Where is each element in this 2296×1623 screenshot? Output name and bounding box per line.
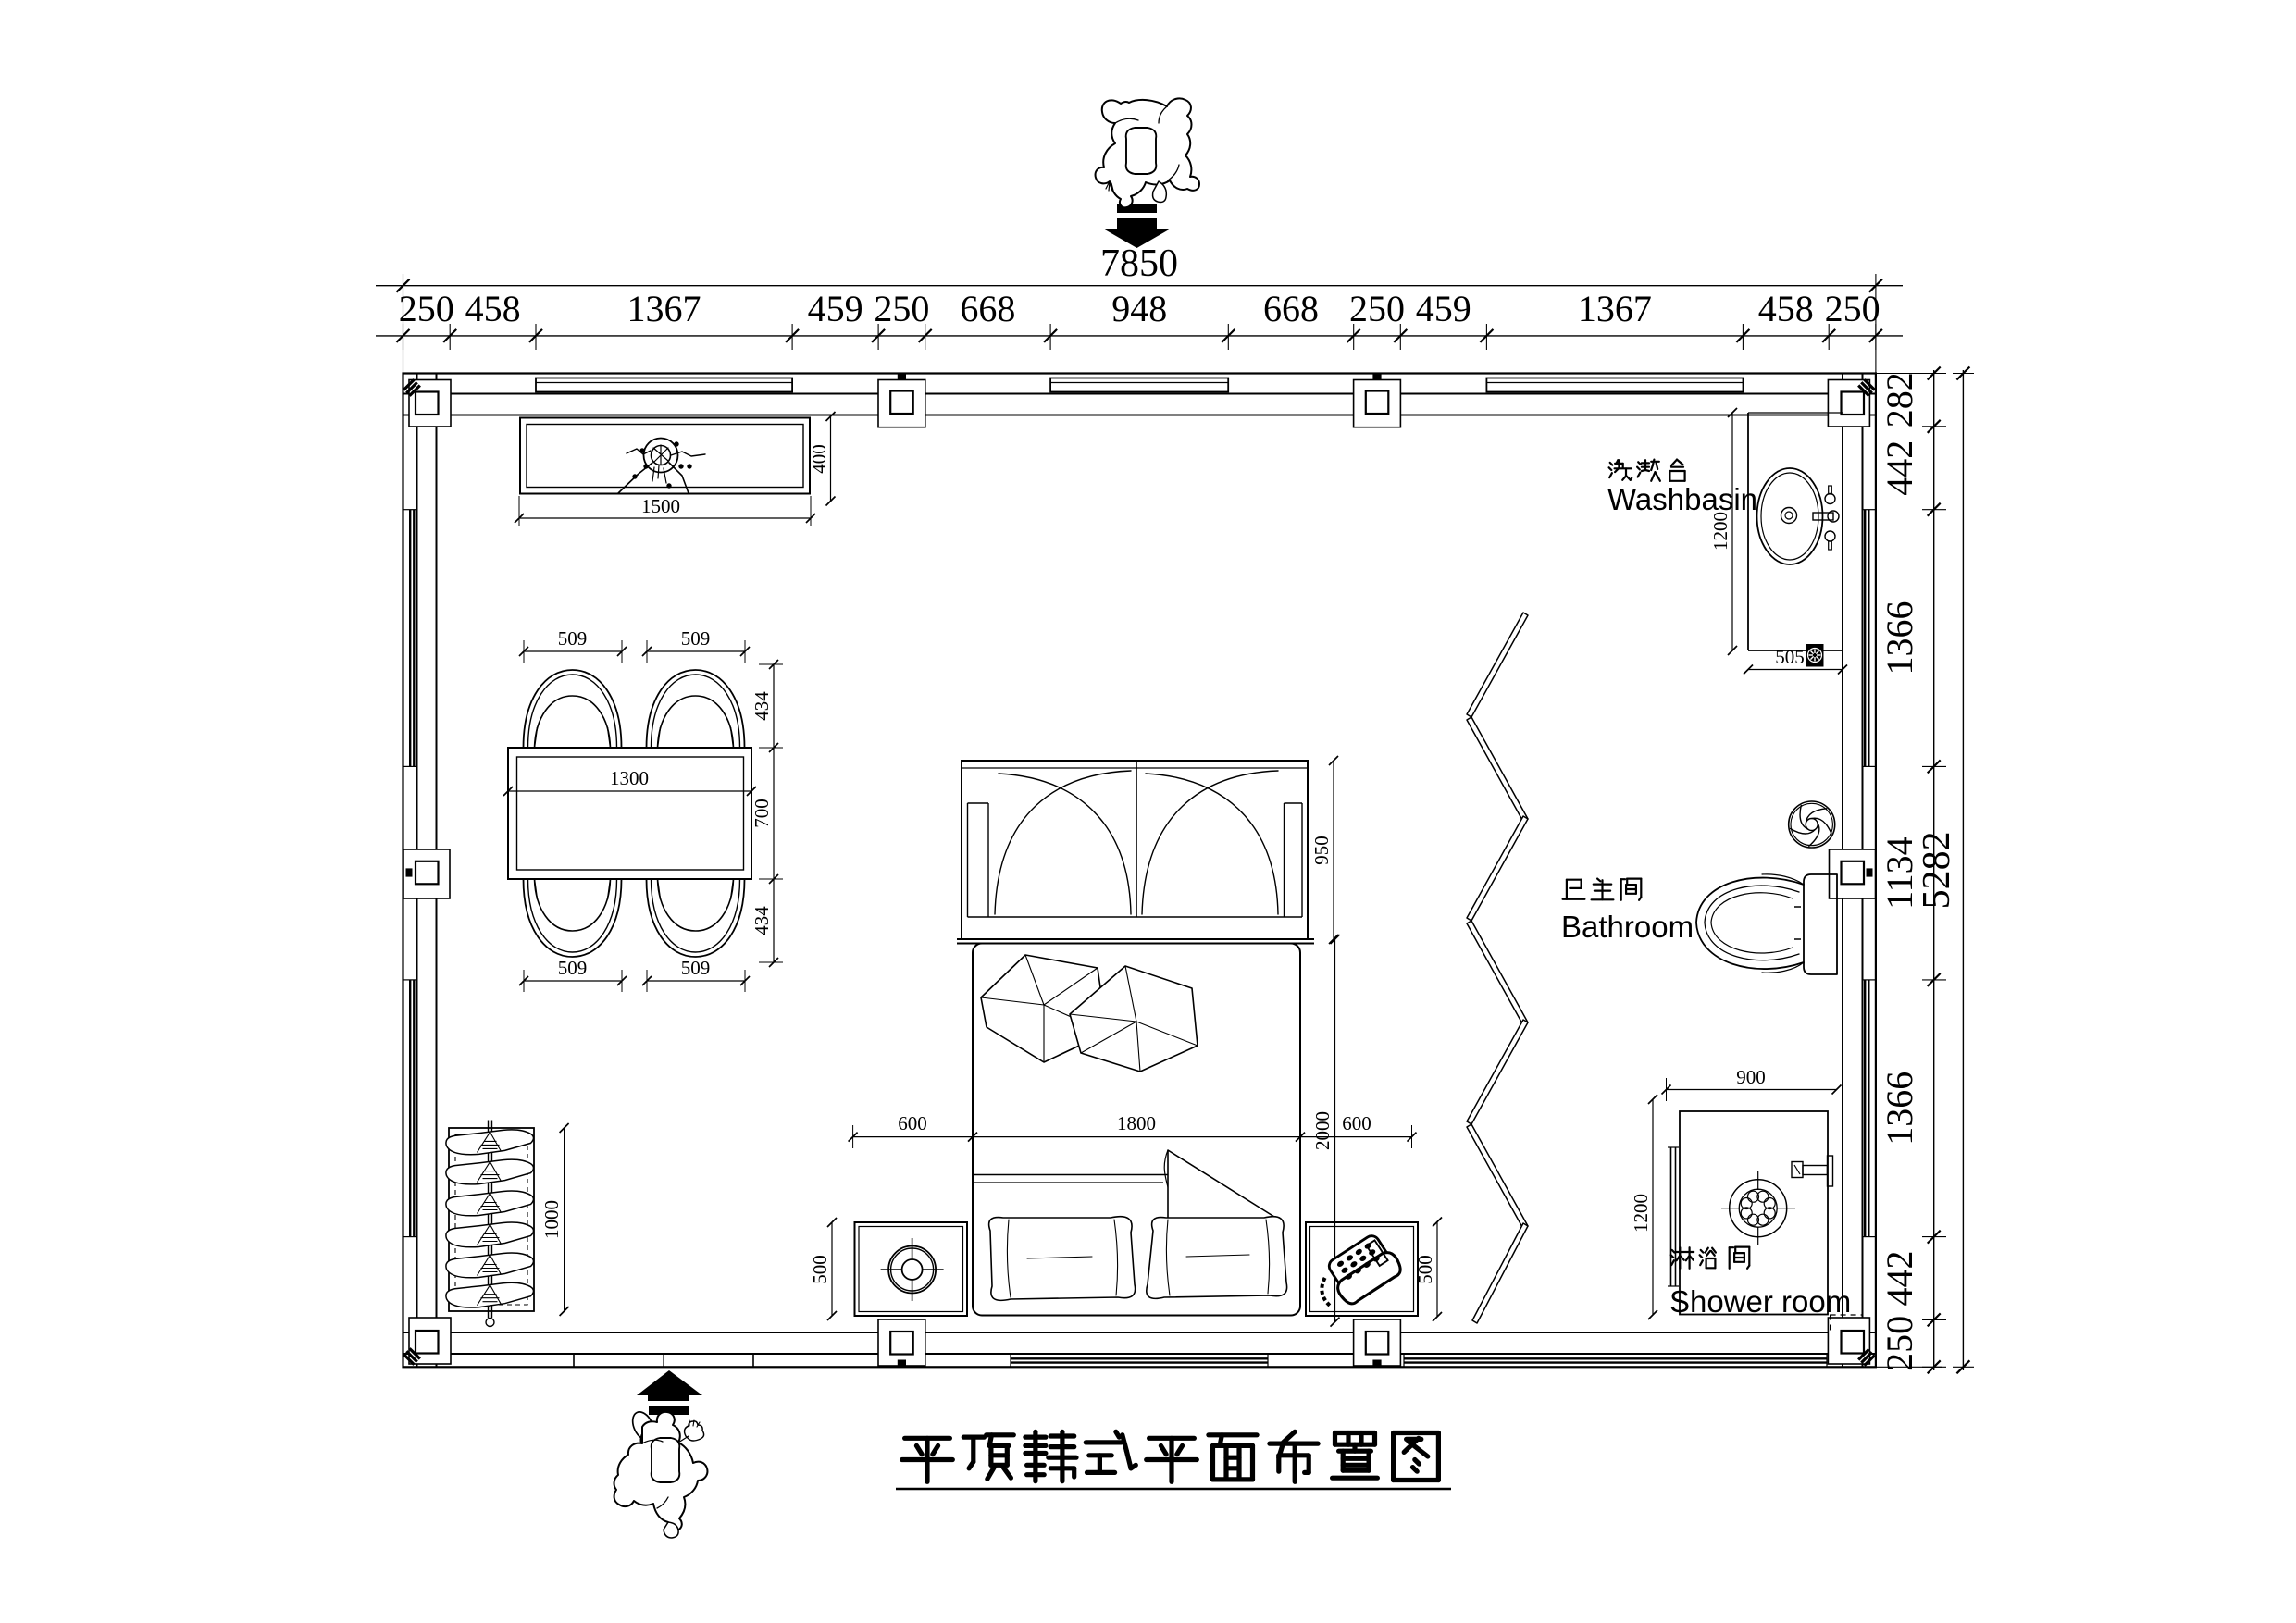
svg-text:5282: 5282 (1916, 831, 1958, 909)
svg-text:434: 434 (751, 906, 773, 935)
svg-text:600: 600 (1342, 1112, 1371, 1134)
svg-text:250: 250 (399, 288, 454, 329)
svg-text:600: 600 (898, 1112, 927, 1134)
svg-text:458: 458 (465, 288, 521, 329)
svg-text:2000: 2000 (1311, 1111, 1334, 1150)
svg-text:250: 250 (874, 288, 929, 329)
svg-text:948: 948 (1111, 288, 1167, 329)
svg-text:950: 950 (1310, 836, 1333, 865)
svg-text:458: 458 (1758, 288, 1814, 329)
svg-text:900: 900 (1736, 1066, 1766, 1088)
svg-text:Washbasin: Washbasin (1607, 482, 1757, 516)
svg-text:442: 442 (1879, 1251, 1920, 1307)
svg-text:250: 250 (1349, 288, 1405, 329)
svg-text:500: 500 (809, 1255, 831, 1284)
svg-text:700: 700 (751, 799, 773, 828)
svg-text:Shower room: Shower room (1669, 1284, 1851, 1319)
svg-text:1500: 1500 (641, 495, 680, 517)
svg-text:509: 509 (681, 957, 711, 979)
svg-text:668: 668 (1263, 288, 1319, 329)
svg-text:1300: 1300 (610, 767, 649, 789)
svg-text:1366: 1366 (1879, 1072, 1920, 1146)
svg-text:434: 434 (751, 691, 773, 721)
svg-text:1367: 1367 (627, 288, 701, 329)
svg-text:509: 509 (558, 957, 588, 979)
svg-text:400: 400 (808, 444, 830, 474)
svg-text:1134: 1134 (1879, 836, 1920, 910)
svg-text:509: 509 (681, 627, 711, 650)
svg-text:459: 459 (1416, 288, 1471, 329)
svg-text:1800: 1800 (1117, 1112, 1156, 1134)
svg-text:1367: 1367 (1578, 288, 1652, 329)
svg-text:505: 505 (1775, 646, 1805, 668)
svg-text:250: 250 (1825, 288, 1880, 329)
svg-text:500: 500 (1414, 1255, 1436, 1284)
svg-text:1366: 1366 (1879, 601, 1920, 675)
svg-text:1200: 1200 (1709, 512, 1731, 551)
svg-text:442: 442 (1879, 440, 1920, 496)
svg-text:1000: 1000 (540, 1200, 563, 1239)
svg-text:250: 250 (1879, 1316, 1920, 1371)
svg-text:282: 282 (1879, 372, 1920, 427)
svg-text:Bathroom: Bathroom (1561, 910, 1694, 944)
svg-text:459: 459 (808, 288, 863, 329)
svg-text:668: 668 (960, 288, 1015, 329)
svg-text:7850: 7850 (1100, 242, 1178, 285)
svg-text:1200: 1200 (1630, 1194, 1652, 1233)
svg-text:509: 509 (558, 627, 588, 650)
